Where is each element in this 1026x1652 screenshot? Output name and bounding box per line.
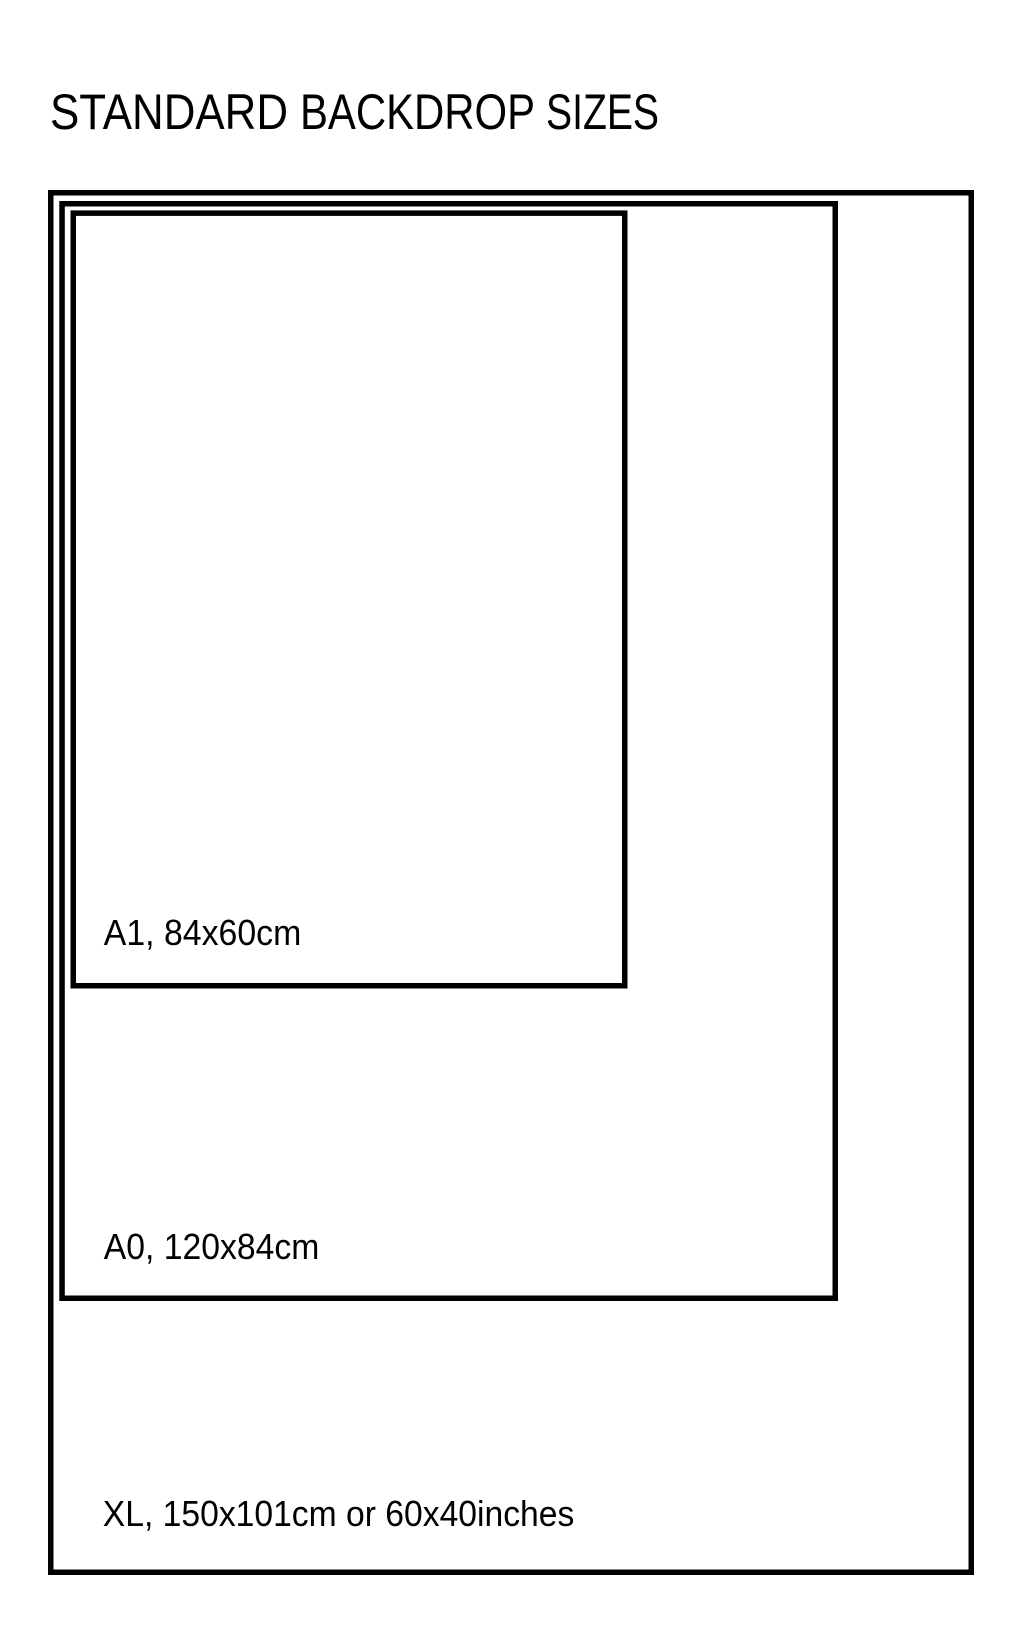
svg-text:SIZES: SIZES [546, 84, 659, 140]
svg-text:A0, 120x84cm: A0, 120x84cm [104, 1226, 319, 1267]
svg-text:XL, 150x101cm or 60x40inches: XL, 150x101cm or 60x40inches [103, 1493, 575, 1534]
svg-text:STANDARD: STANDARD [50, 84, 288, 140]
svg-text:A1, 84x60cm: A1, 84x60cm [104, 912, 301, 953]
svg-text:BACKDROP: BACKDROP [300, 84, 535, 140]
